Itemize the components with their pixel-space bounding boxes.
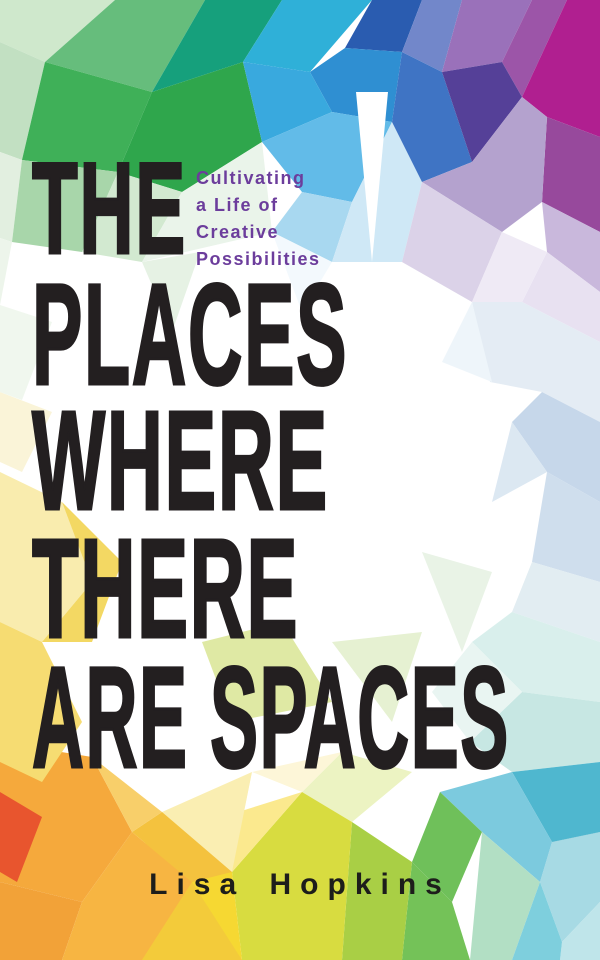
subtitle-line-2: a Life of: [196, 192, 321, 219]
subtitle-line-3: Creative: [196, 219, 321, 246]
subtitle-line-1: Cultivating: [196, 165, 321, 192]
subtitle-line-4: Possibilities: [196, 246, 321, 273]
author-name: Lisa Hopkins: [0, 868, 600, 902]
title-line-5: ARE SPACES: [32, 646, 510, 790]
book-cover: THE PLACES WHERE THERE ARE SPACES Cultiv…: [0, 0, 600, 960]
book-subtitle: Cultivating a Life of Creative Possibili…: [196, 165, 321, 273]
